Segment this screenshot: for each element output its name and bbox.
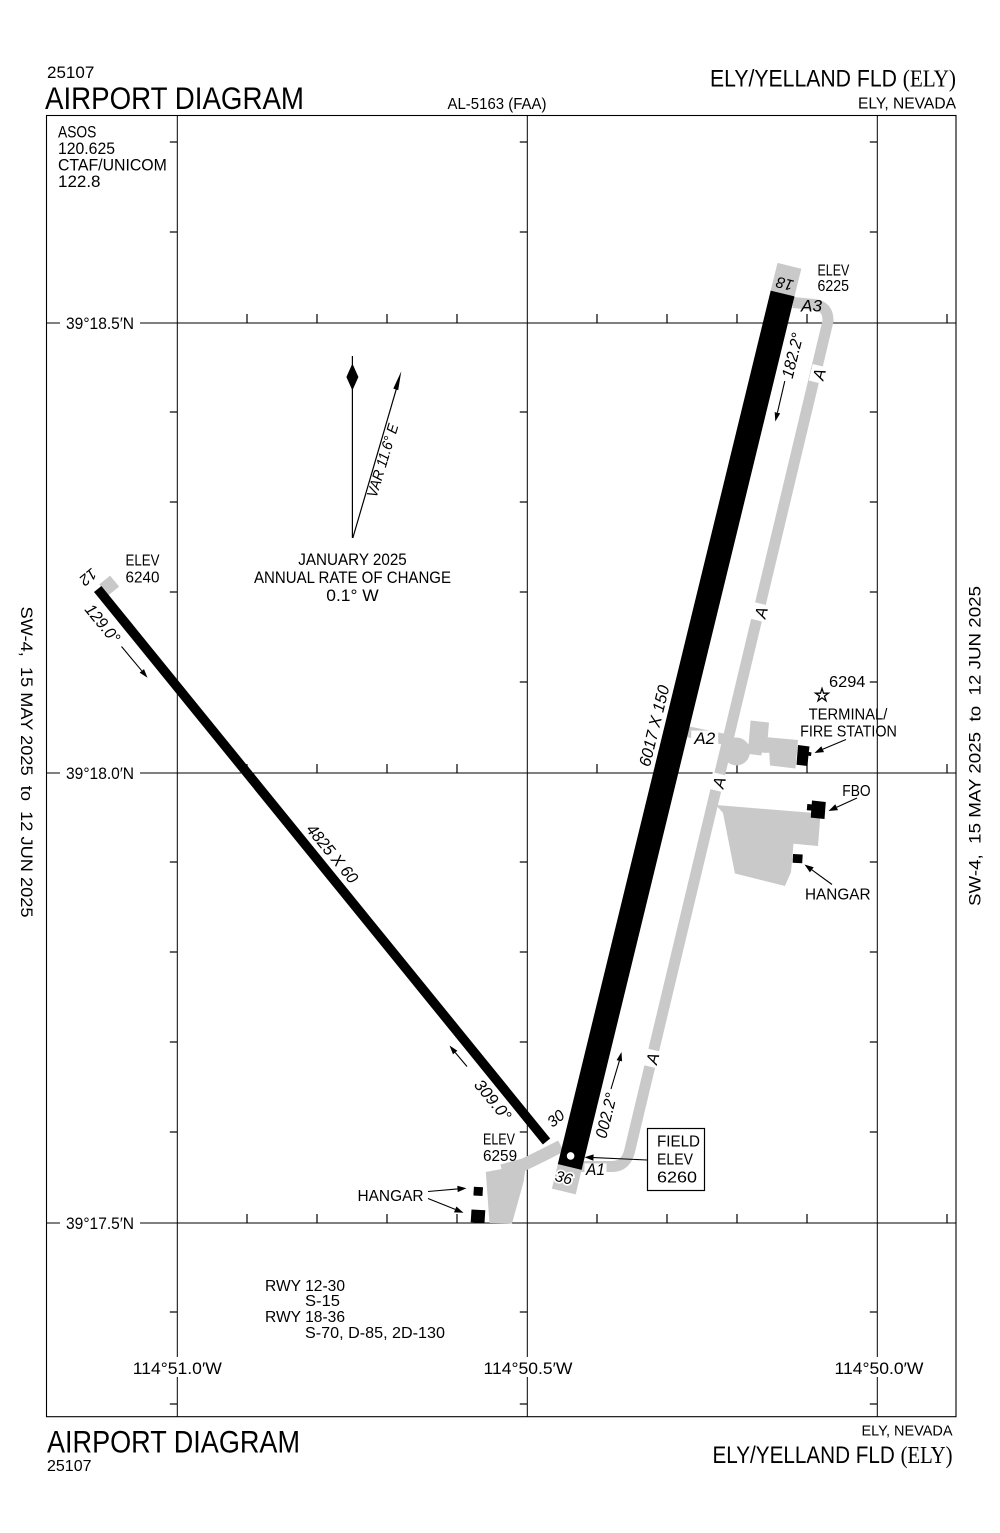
svg-text:AIRPORT DIAGRAM: AIRPORT DIAGRAM bbox=[47, 1424, 300, 1460]
svg-text:ELEV: ELEV bbox=[657, 1152, 693, 1169]
svg-text:ELY, NEVADA: ELY, NEVADA bbox=[858, 96, 956, 113]
svg-text:FIELD: FIELD bbox=[657, 1134, 700, 1151]
svg-text:SW-4, 15 MAY 2025 to 12 JUN: SW-4, 15 MAY 2025 to 12 JUN 2025 bbox=[17, 607, 36, 918]
svg-text:114°50.0′W: 114°50.0′W bbox=[835, 1360, 924, 1378]
svg-text:HANGAR: HANGAR bbox=[805, 887, 871, 904]
svg-text:ELEV: ELEV bbox=[483, 1132, 515, 1149]
svg-text:0.1° W: 0.1° W bbox=[326, 586, 379, 605]
svg-text:ELY, NEVADA: ELY, NEVADA bbox=[862, 1423, 953, 1440]
svg-text:6240: 6240 bbox=[126, 570, 160, 587]
svg-text:114°51.0′W: 114°51.0′W bbox=[133, 1360, 222, 1378]
svg-text:39°17.5′N: 39°17.5′N bbox=[66, 1215, 134, 1233]
svg-text:ANNUAL RATE OF CHANGE: ANNUAL RATE OF CHANGE bbox=[254, 568, 451, 587]
svg-text:6225: 6225 bbox=[818, 278, 850, 295]
svg-text:S-70, D-85, 2D-130: S-70, D-85, 2D-130 bbox=[305, 1325, 445, 1342]
svg-text:120.625: 120.625 bbox=[58, 140, 115, 158]
svg-text:6259: 6259 bbox=[483, 1148, 517, 1165]
svg-text:39°18.0′N: 39°18.0′N bbox=[66, 765, 134, 783]
svg-text:A3: A3 bbox=[800, 298, 823, 316]
svg-text:ASOS: ASOS bbox=[58, 124, 96, 142]
svg-text:A1: A1 bbox=[585, 1161, 605, 1179]
svg-text:AIRPORT DIAGRAM: AIRPORT DIAGRAM bbox=[45, 80, 304, 116]
svg-text:122.8: 122.8 bbox=[58, 173, 101, 191]
svg-text:HANGAR: HANGAR bbox=[358, 1188, 424, 1205]
svg-text:AL-5163 (FAA): AL-5163 (FAA) bbox=[448, 96, 547, 113]
svg-text:A2: A2 bbox=[693, 730, 715, 748]
svg-text:ELEV: ELEV bbox=[126, 553, 160, 570]
svg-text:114°50.5′W: 114°50.5′W bbox=[484, 1360, 573, 1378]
svg-text:6294: 6294 bbox=[829, 674, 866, 691]
svg-text:FIRE STATION: FIRE STATION bbox=[800, 723, 897, 740]
svg-text:CTAF/UNICOM: CTAF/UNICOM bbox=[58, 157, 167, 175]
svg-text:RWY 18-36: RWY 18-36 bbox=[265, 1309, 345, 1326]
svg-text:ELY/YELLAND FLD (ELY): ELY/YELLAND FLD (ELY) bbox=[713, 1442, 953, 1469]
svg-text:6260: 6260 bbox=[657, 1170, 697, 1187]
svg-text:S-15: S-15 bbox=[305, 1293, 340, 1310]
svg-text:TERMINAL/: TERMINAL/ bbox=[809, 707, 888, 724]
svg-text:SW-4, 15 MAY 2025 to 12 JUN: SW-4, 15 MAY 2025 to 12 JUN 2025 bbox=[966, 586, 985, 906]
svg-text:FBO: FBO bbox=[842, 783, 870, 800]
svg-text:39°18.5′N: 39°18.5′N bbox=[66, 315, 134, 333]
svg-text:ELEV: ELEV bbox=[818, 263, 850, 280]
svg-text:ELY/YELLAND FLD (ELY): ELY/YELLAND FLD (ELY) bbox=[710, 66, 956, 93]
svg-text:JANUARY 2025: JANUARY 2025 bbox=[298, 550, 407, 569]
svg-text:25107: 25107 bbox=[47, 1458, 92, 1475]
